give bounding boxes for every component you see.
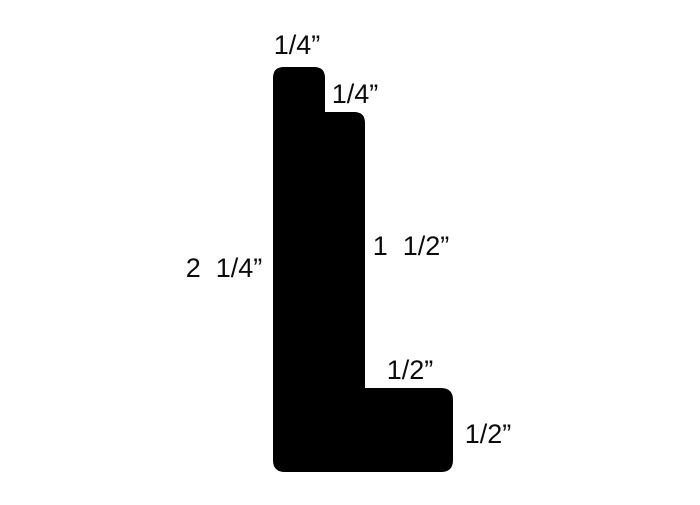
diagram-canvas: 1/4” 1/4” 1 1/2” 2 1/4” 1/2” 1/2” <box>0 0 700 500</box>
dimension-label-foot-extension-width: 1/2” <box>387 355 434 385</box>
moulding-profile-shape <box>273 67 453 472</box>
dimension-label-second-step-width: 1/4” <box>332 79 379 109</box>
dimension-label-leg-height: 1 1/2” <box>373 231 450 261</box>
dimension-label-total-height: 2 1/4” <box>186 253 263 283</box>
dimension-label-foot-height: 1/2” <box>465 419 512 449</box>
dimension-label-top-step-width: 1/4” <box>274 30 321 60</box>
moulding-profile-diagram: 1/4” 1/4” 1 1/2” 2 1/4” 1/2” 1/2” <box>0 0 700 500</box>
